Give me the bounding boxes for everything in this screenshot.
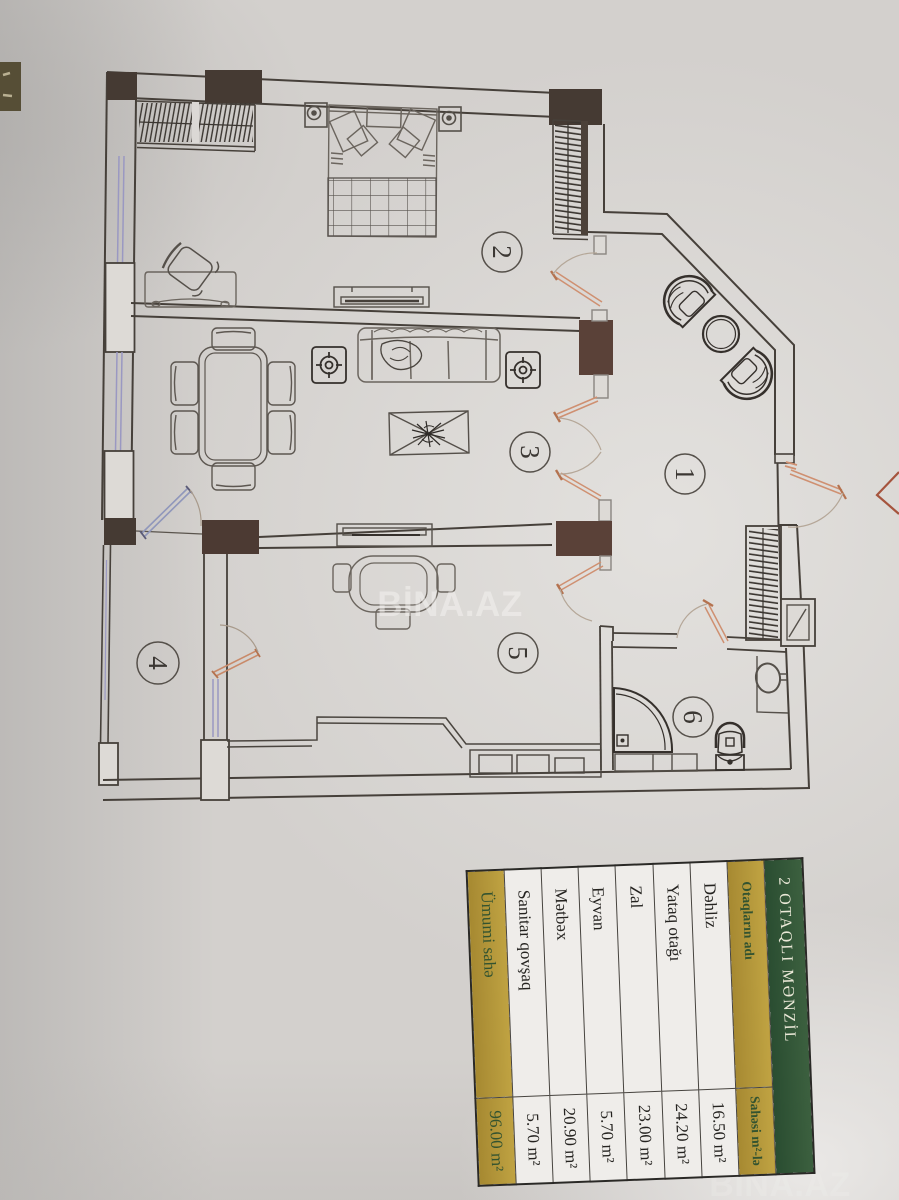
svg-text:2: 2 — [487, 245, 517, 259]
svg-text:1: 1 — [670, 467, 700, 481]
svg-text:3: 3 — [515, 445, 545, 459]
svg-text:5: 5 — [503, 646, 533, 660]
svg-text:4: 4 — [143, 656, 173, 670]
svg-text:BİNA.AZ: BİNA.AZ — [377, 585, 522, 624]
svg-text:6: 6 — [678, 710, 708, 724]
